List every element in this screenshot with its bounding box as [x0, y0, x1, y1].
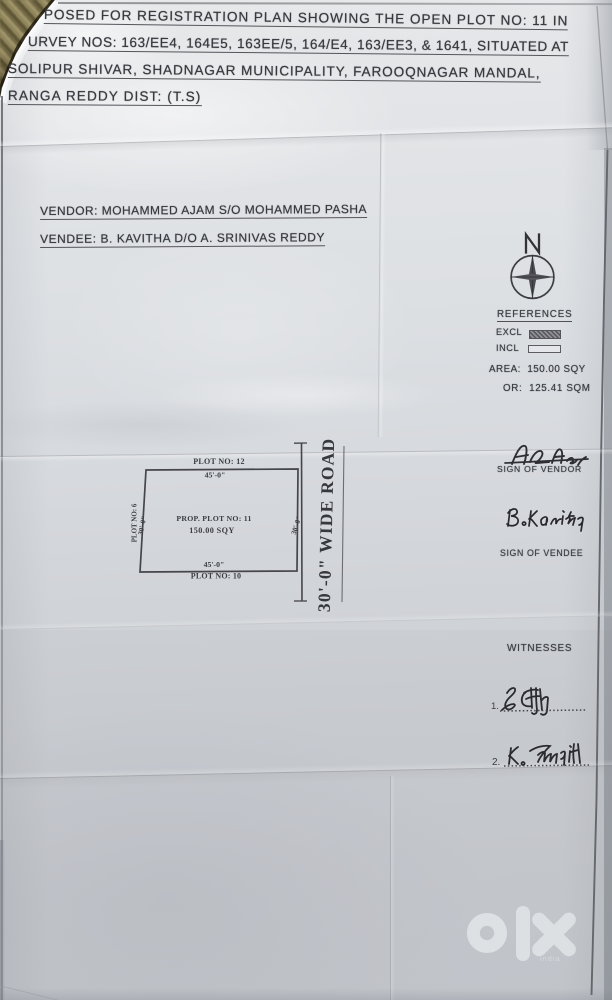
- svg-text:PLOT NO: 10: PLOT NO: 10: [191, 572, 242, 581]
- svg-text:30'-0" WIDE ROAD: 30'-0" WIDE ROAD: [314, 437, 339, 612]
- svg-text:150.00 SQY: 150.00 SQY: [189, 526, 234, 535]
- svg-text:45'-0": 45'-0": [205, 471, 226, 480]
- svg-text:PROP. PLOT NO: 11: PROP. PLOT NO: 11: [176, 514, 251, 523]
- svg-text:1.: 1.: [491, 701, 499, 712]
- svg-text:india: india: [540, 956, 561, 963]
- svg-text:45'-0": 45'-0": [204, 560, 225, 569]
- svg-text:PLOT NO: 12: PLOT NO: 12: [193, 457, 245, 466]
- svg-text:PLOT NO: 6: PLOT NO: 6: [131, 503, 139, 542]
- svg-text:2.: 2.: [492, 757, 500, 768]
